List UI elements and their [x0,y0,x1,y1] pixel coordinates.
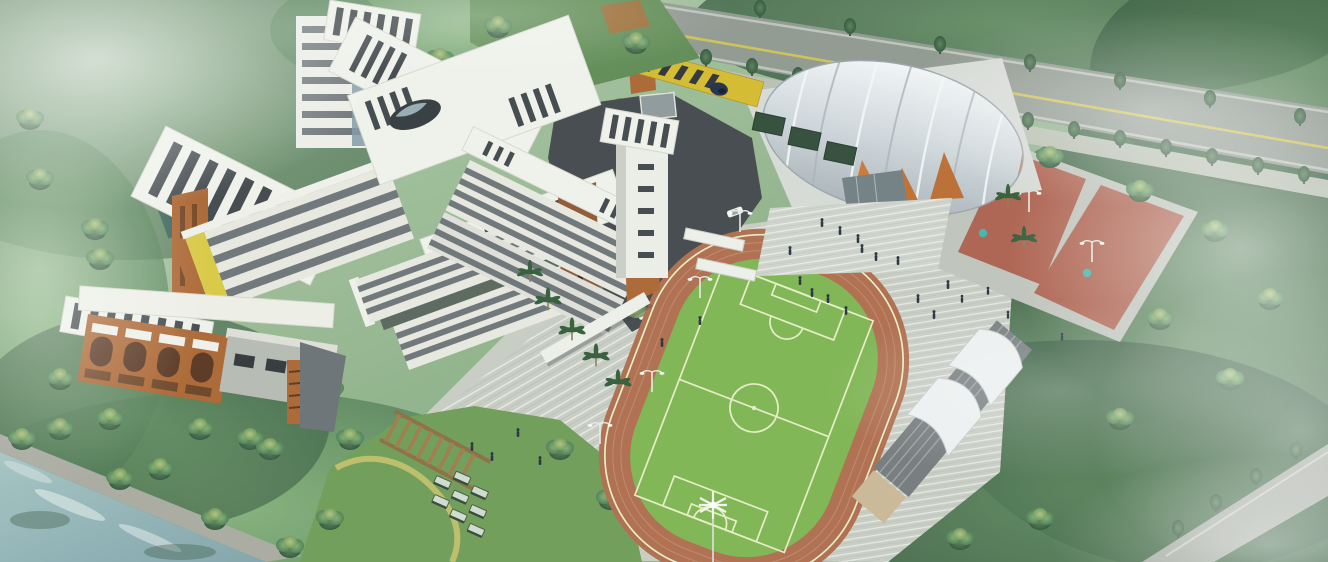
campus-rendering [0,0,1328,562]
fog-haze [0,0,1328,562]
campus-rendering-canvas [0,0,1328,562]
atmosphere-wash [0,0,1328,562]
